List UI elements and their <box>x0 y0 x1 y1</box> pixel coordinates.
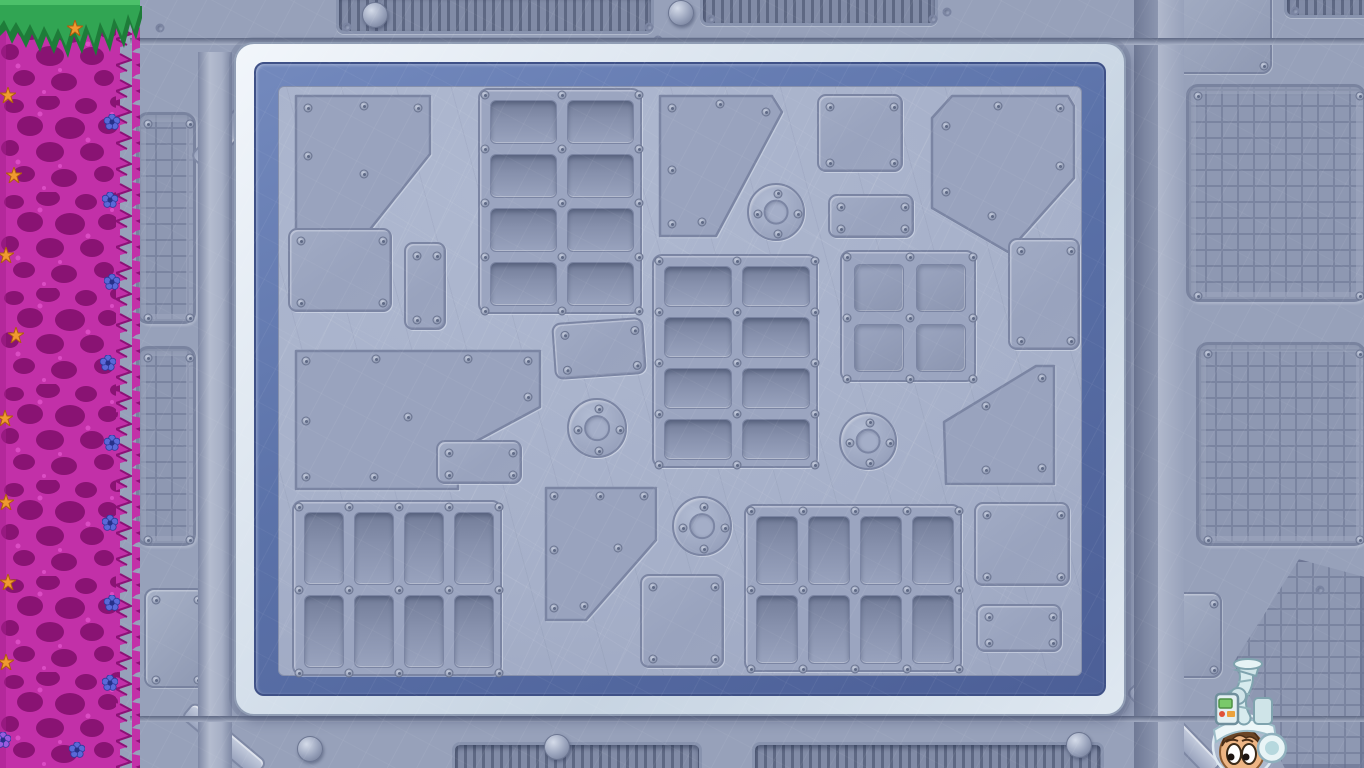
petal-flower <box>0 732 11 748</box>
petal-flower <box>102 192 118 208</box>
star-flower <box>67 20 83 36</box>
star-flower <box>0 247 14 263</box>
gadget-device <box>1216 694 1238 724</box>
petal-flower <box>104 595 120 611</box>
game-stage <box>0 0 1364 768</box>
flower-layer <box>0 0 1364 768</box>
petal-flower <box>104 435 120 451</box>
petal-flower <box>69 742 85 758</box>
petal-flower <box>100 355 116 371</box>
petal-flower <box>104 114 120 130</box>
star-flower <box>0 654 14 670</box>
petal-flower <box>102 675 118 691</box>
star-flower <box>0 87 16 103</box>
petal-flower <box>104 274 120 290</box>
star-flower <box>6 167 22 183</box>
star-flower <box>0 494 14 510</box>
space-helmet-kid-sprite[interactable] <box>1202 654 1306 768</box>
star-flower <box>8 327 24 343</box>
star-flower <box>0 574 16 590</box>
star-flower <box>0 410 13 426</box>
petal-flower <box>102 515 118 531</box>
